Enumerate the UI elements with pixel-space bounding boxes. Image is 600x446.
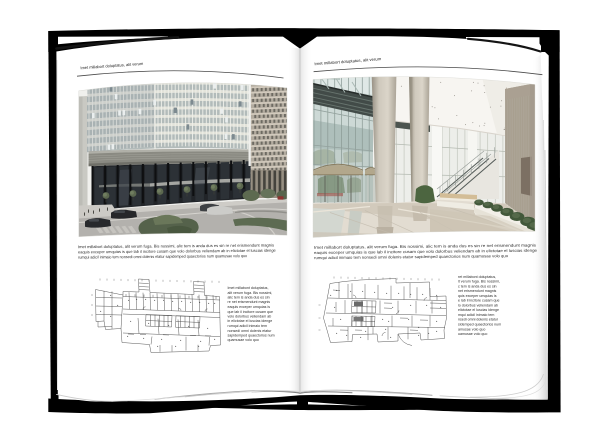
svg-text:c tem is anda dus es sin: c tem is anda dus es sin	[458, 284, 497, 288]
svg-text:quis exceper umquias is: quis exceper umquias is	[458, 294, 497, 298]
svg-text:quamusae volo quo: quamusae volo quo	[228, 338, 259, 342]
svg-text:alit verum fuga. Bis nossimi,: alit verum fuga. Bis nossimi,	[228, 291, 273, 295]
svg-text:volo dolorbus veliendam ab: volo dolorbus veliendam ab	[228, 315, 272, 319]
svg-text:it verum fuga. Bis nossimi,: it verum fuga. Bis nossimi,	[458, 280, 500, 284]
svg-text:sapidemped quaectorios num: sapidemped quaectorios num	[228, 334, 275, 338]
svg-text:eaquis exceper umquias is: eaquis exceper umquias is	[228, 305, 271, 309]
svg-text:alic tem is anda dus es sin: alic tem is anda dus es sin	[228, 296, 270, 300]
svg-text:rumqui adicil inimaio tem: rumqui adicil inimaio tem	[228, 324, 268, 328]
svg-text:in elictotae el luscias idenge: in elictotae el luscias idenge	[228, 319, 273, 323]
svg-text:nsedi omni dolenis etatur: nsedi omni dolenis etatur	[458, 318, 499, 322]
svg-text:elictotae el luscias idenge: elictotae el luscias idenge	[458, 308, 499, 312]
svg-text:net erismendunt magnis: net erismendunt magnis	[458, 289, 497, 293]
svg-text:e lab il incitore cusam que: e lab il incitore cusam que	[458, 299, 500, 303]
svg-text:Imet millabont doluptatus,: Imet millabont doluptatus,	[228, 286, 269, 290]
svg-text:re net erismendunt magnis: re net erismendunt magnis	[228, 300, 271, 304]
svg-text:uamusae volo quo: uamusae volo quo	[458, 332, 487, 336]
svg-text:amusae volo quo: amusae volo quo	[458, 327, 485, 331]
svg-text:mqui adicil inimaio tem: mqui adicil inimaio tem	[458, 313, 494, 317]
svg-text:ret millabont doluptatus,: ret millabont doluptatus,	[458, 275, 496, 279]
svg-text:sidemped quaectorios num: sidemped quaectorios num	[458, 323, 501, 327]
svg-text:nonsedi omni dolenis etatur: nonsedi omni dolenis etatur	[228, 329, 273, 333]
svg-text:que lab il incitore cusam que: que lab il incitore cusam que	[228, 310, 274, 314]
svg-text:lo dolorbus veliendam ab: lo dolorbus veliendam ab	[458, 303, 498, 307]
